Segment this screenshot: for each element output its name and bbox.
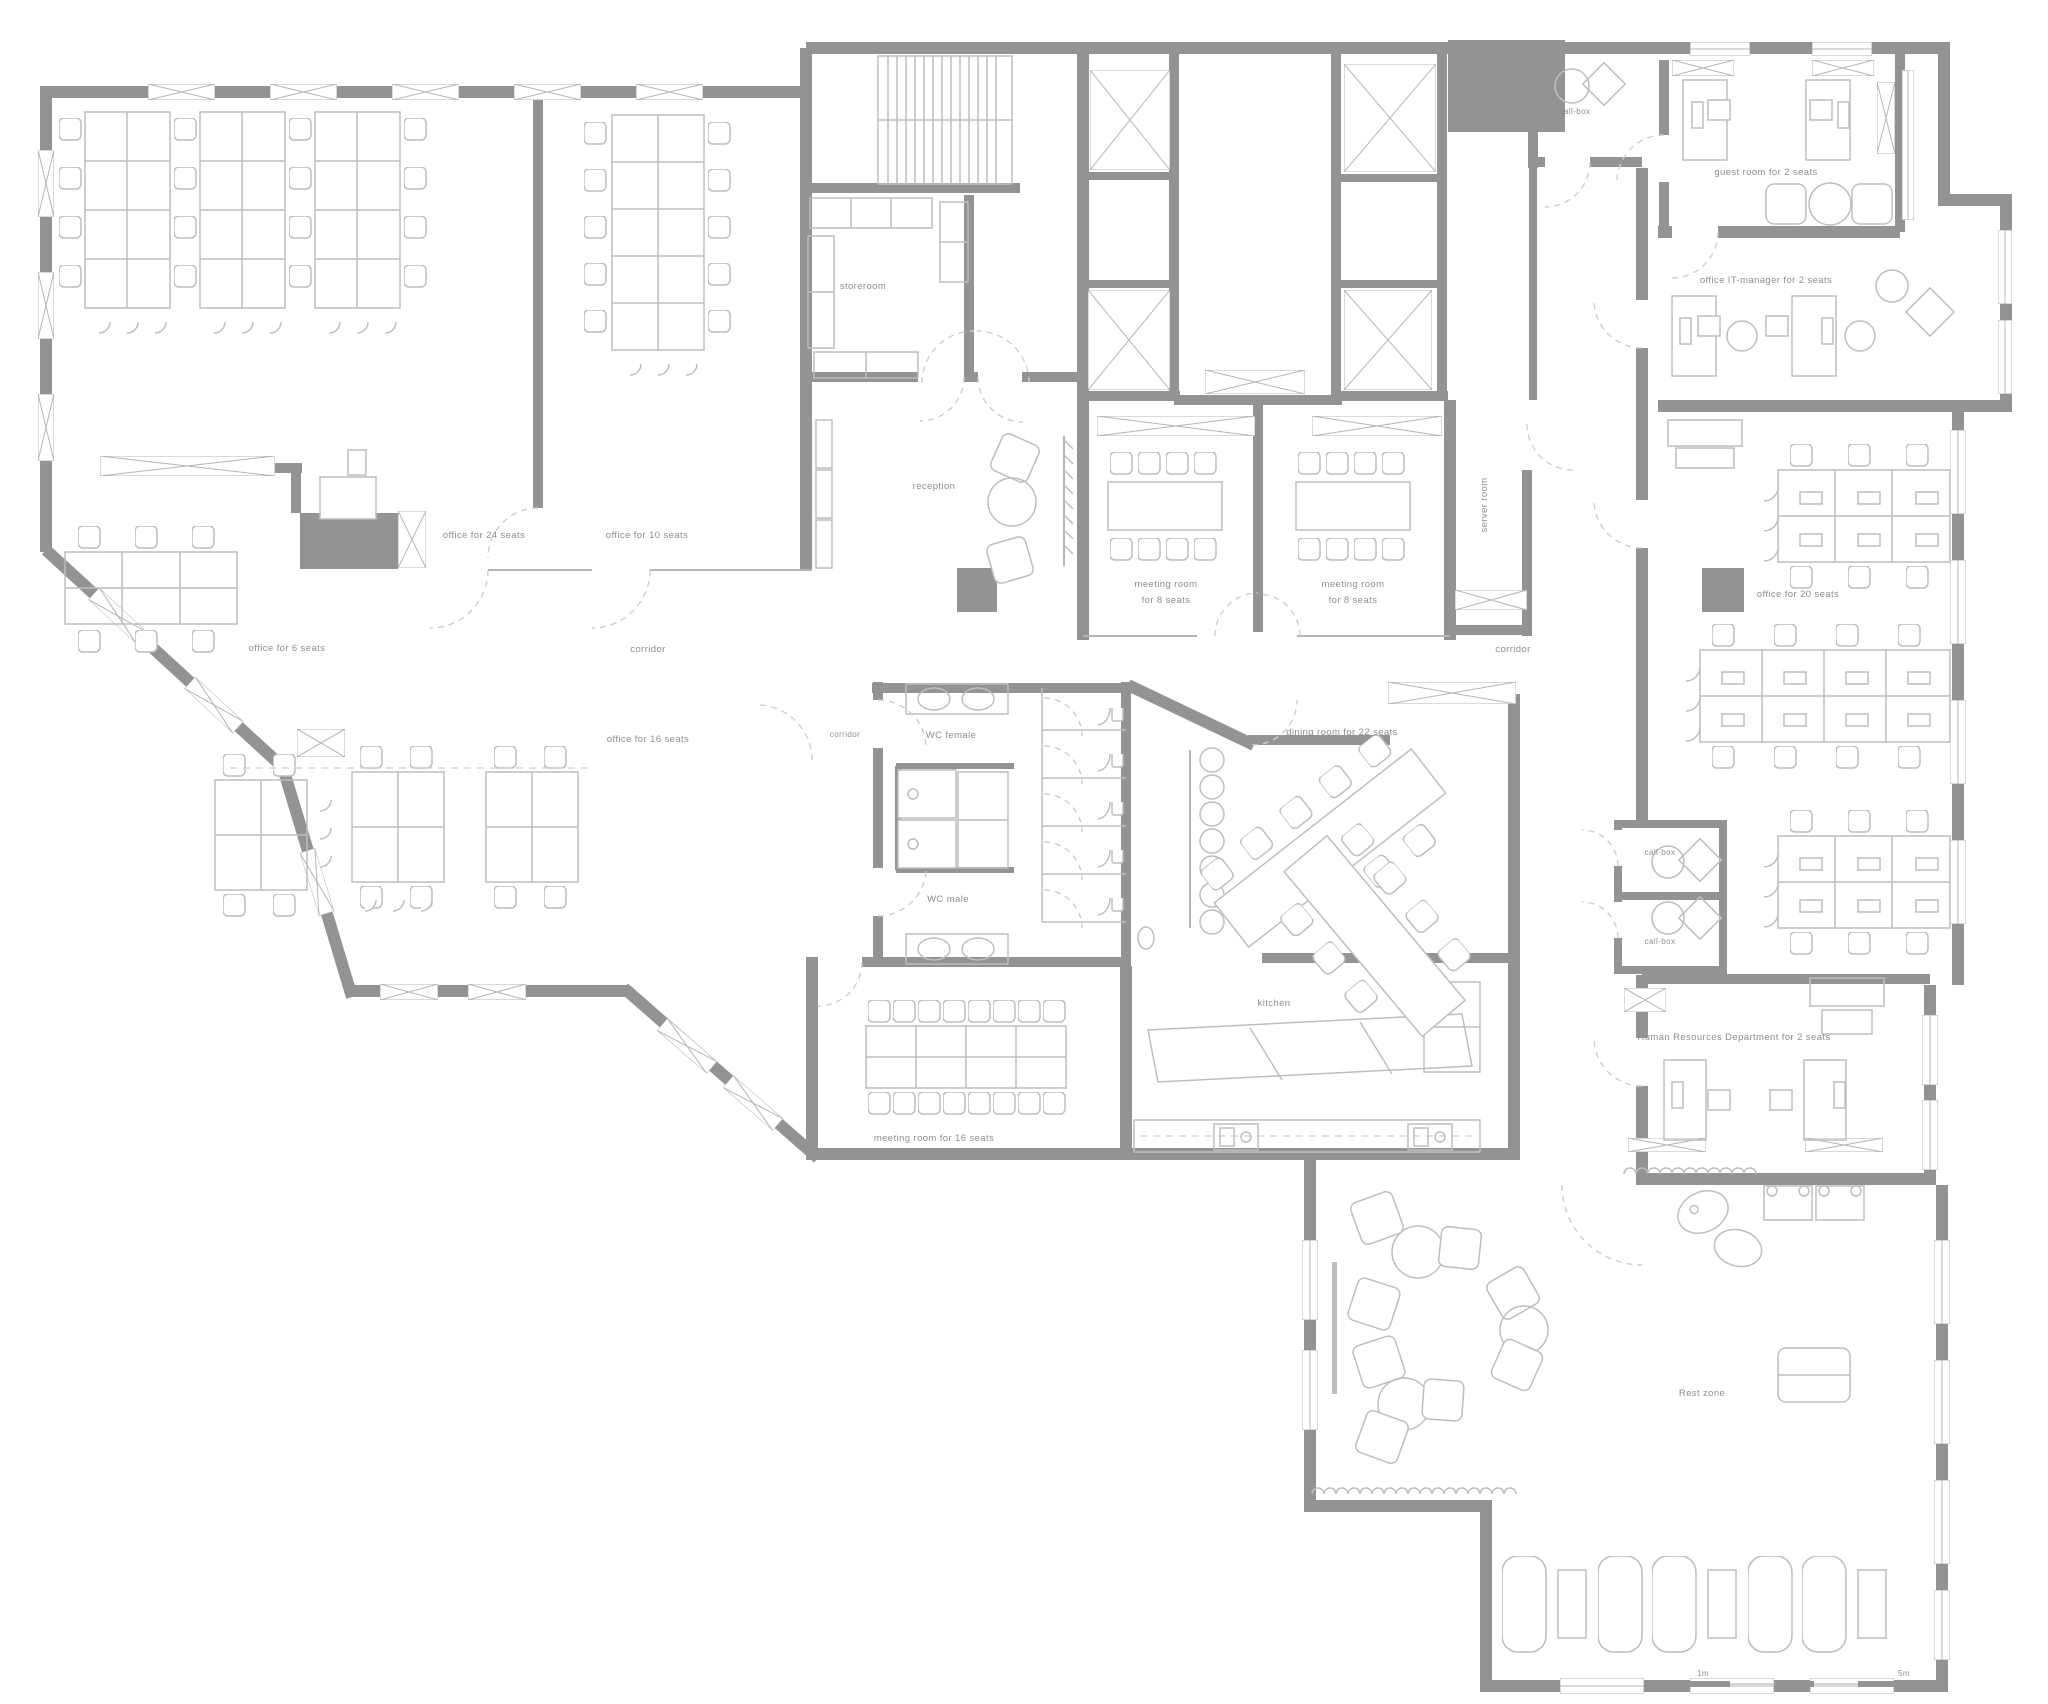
reception-furniture (816, 420, 1073, 585)
label-corridor-left: corridor (630, 644, 665, 655)
label-rest-zone: Rest zone (1679, 1388, 1725, 1399)
label-guest-room: guest room for 2 seats (1714, 167, 1817, 178)
label-meeting-16: meeting room for 16 seats (874, 1133, 994, 1144)
rest-zone-furniture (1312, 1168, 1886, 1652)
label-server-room: server room (1479, 477, 1490, 532)
label-meeting-8a-2: for 8 seats (1142, 595, 1191, 606)
hr-furniture (1664, 978, 1884, 1140)
room-labels: office for 24 seats office for 10 seats … (249, 107, 1840, 1399)
label-wc-female: WC female (926, 730, 977, 741)
label-office-20: office for 20 seats (1757, 589, 1839, 600)
storeroom-shelving (808, 198, 968, 378)
meeting-room-8a-furniture (1108, 452, 1222, 560)
windows (38, 42, 2012, 1694)
label-office-16: office for 16 seats (607, 734, 689, 745)
label-kitchen: kitchen (1258, 998, 1291, 1009)
wc-fixtures (898, 684, 1154, 964)
label-call-box-top: call-box (1560, 107, 1591, 116)
label-meeting-8b-1: meeting room (1322, 579, 1385, 590)
elevator-shafts (1088, 64, 1436, 390)
label-call-box-1: call-box (1645, 848, 1676, 857)
floor-plan-drawing: office for 24 seats office for 10 seats … (0, 0, 2048, 1704)
office-10-furniture (584, 115, 730, 375)
dining-room-furniture (1190, 722, 1491, 1058)
exterior-walls (40, 48, 2012, 1692)
staircase (878, 56, 1012, 184)
label-reception: reception (913, 481, 956, 492)
label-office-6: office for 6 seats (249, 643, 326, 654)
label-meeting-8b-2: for 8 seats (1329, 595, 1378, 606)
meeting-room-16-furniture (866, 1000, 1066, 1114)
label-it-manager: office IT-manager for 2 seats (1700, 275, 1832, 286)
label-storeroom: storeroom (840, 281, 886, 292)
label-corridor-wc: corridor (830, 730, 860, 739)
office-16-furniture (215, 746, 578, 916)
scale-label-5m: 5m (1898, 1669, 1910, 1678)
interior-walls (275, 48, 1930, 1185)
label-office-10: office for 10 seats (606, 530, 688, 541)
label-meeting-8a-1: meeting room (1135, 579, 1198, 590)
scale-label-1m: 1m (1697, 1669, 1709, 1678)
label-wc-male: WC male (927, 894, 969, 905)
meeting-room-8b-furniture (1296, 452, 1410, 560)
label-corridor-right: corridor (1495, 644, 1530, 655)
label-office-24: office for 24 seats (443, 530, 525, 541)
office-20-furniture (1668, 420, 1950, 954)
guest-room-furniture (1555, 63, 1892, 225)
floor-plan-page: office for 24 seats office for 10 seats … (0, 0, 2048, 1704)
label-call-box-2: call-box (1645, 937, 1676, 946)
label-hr: Human Resources Department for 2 seats (1637, 1032, 1830, 1043)
label-dining: dining room for 22 seats (1286, 727, 1398, 738)
